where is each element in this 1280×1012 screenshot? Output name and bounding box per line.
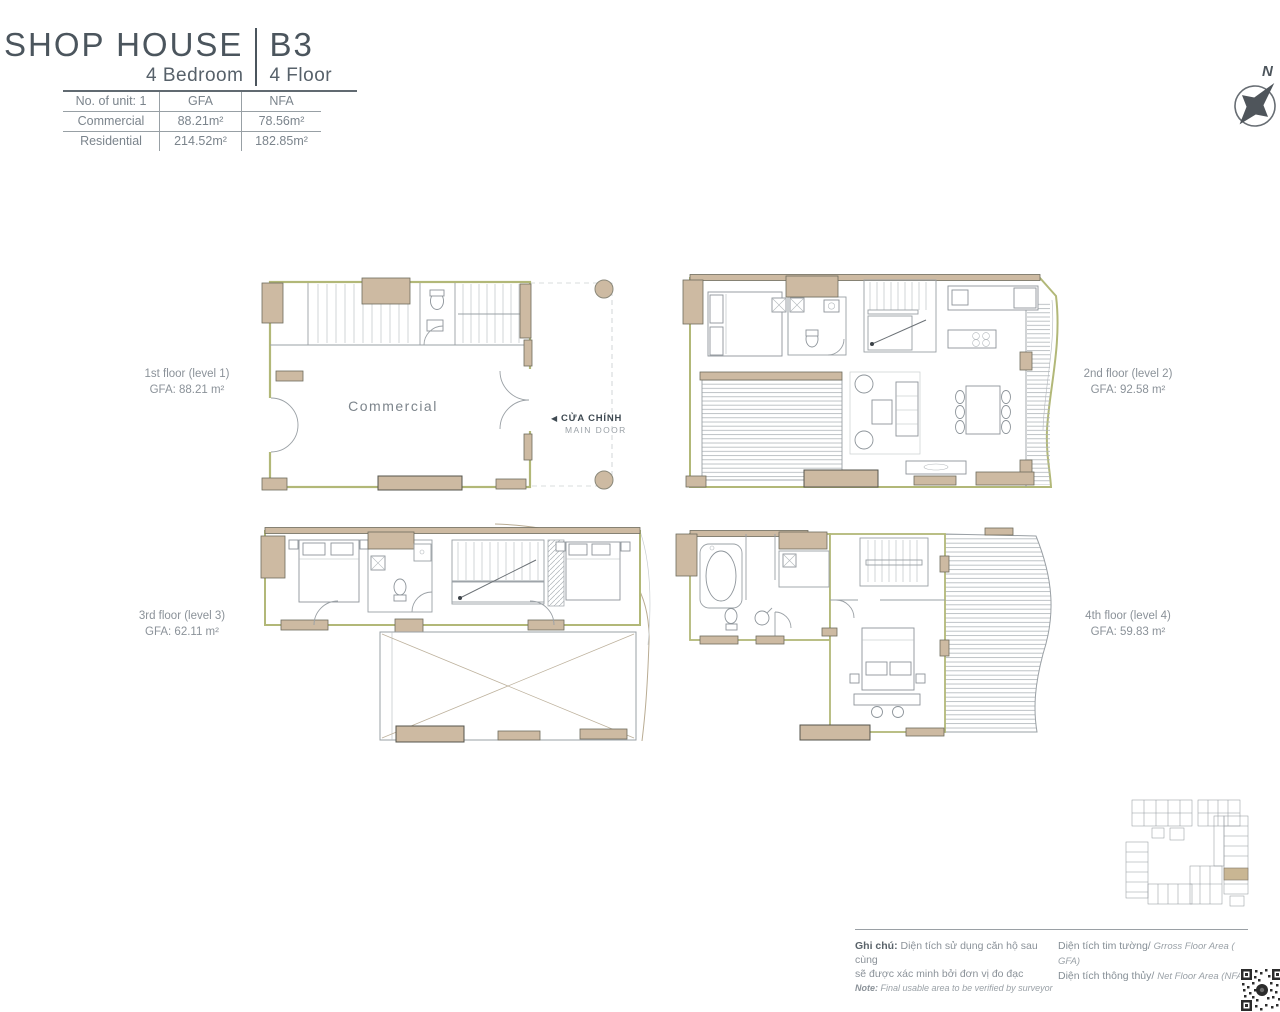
note-line-2: sẽ được xác minh bởi đơn vị đo đạc	[855, 967, 1060, 981]
compass-icon: N	[1222, 58, 1280, 138]
main-door-label-en: MAIN DOOR	[565, 425, 627, 435]
spec-table: No. of unit: 1 GFA NFA Commercial 88.21m…	[63, 92, 321, 151]
note-label-en: Note:	[855, 983, 878, 993]
stool-icon	[893, 707, 904, 718]
header: SHOP HOUSE 4 Bedroom B3 4 Floor	[4, 26, 332, 88]
spec-gfa-value: 88.21m²	[159, 112, 241, 131]
toilet-icon	[394, 579, 406, 595]
spec-col-nfa: NFA	[241, 92, 321, 111]
terrace-hatch	[945, 534, 1051, 732]
bed-icon	[862, 628, 914, 690]
console-icon	[906, 461, 966, 474]
notes-legend: Diện tích tim tường/ Grross Floor Area (…	[1058, 939, 1258, 984]
unit-code: B3	[269, 26, 313, 64]
floor-plan-level-3	[253, 516, 660, 764]
compass-north-label: N	[1262, 63, 1274, 80]
spec-label: Residential	[63, 132, 159, 151]
legend-gfa: Diện tích tim tường/ Grross Floor Area (…	[1058, 939, 1258, 969]
column-icon	[595, 471, 613, 489]
note-label-vi: Ghi chú:	[855, 940, 898, 952]
notes-divider	[855, 929, 1248, 930]
floor-name: 3rd floor (level 3)	[87, 608, 277, 624]
spec-row-commercial: Commercial 88.21m² 78.56m²	[63, 112, 321, 132]
bedroom-count: 4 Bedroom	[146, 64, 243, 88]
page-title: SHOP HOUSE	[4, 26, 243, 64]
main-door-arrow-icon: ◀	[551, 414, 558, 423]
floor-count: 4 Floor	[269, 64, 332, 88]
title-right: B3 4 Floor	[269, 26, 332, 88]
qr-code	[1240, 968, 1280, 1012]
bench-icon	[854, 694, 920, 705]
balcony-hatch	[1027, 302, 1050, 485]
stool-icon	[872, 707, 883, 718]
title-left: SHOP HOUSE 4 Bedroom	[4, 26, 243, 88]
dining-table-icon	[966, 386, 1000, 434]
bathtub-icon	[706, 551, 736, 601]
armchair-icon	[855, 375, 873, 393]
floor-label-1: 1st floor (level 1) GFA: 88.21 m²	[92, 366, 282, 398]
title-divider	[255, 28, 257, 86]
sink-icon	[755, 611, 769, 625]
toilet-icon	[725, 609, 737, 624]
spec-col-units: No. of unit: 1	[63, 92, 159, 111]
spec-row-residential: Residential 214.52m² 182.85m²	[63, 132, 321, 151]
spec-label: Commercial	[63, 112, 159, 131]
spec-col-gfa: GFA	[159, 92, 241, 111]
highlighted-unit	[1224, 868, 1248, 880]
floor-gfa: GFA: 62.11 m²	[87, 624, 277, 640]
floor-name: 1st floor (level 1)	[92, 366, 282, 382]
floor-label-3: 3rd floor (level 3) GFA: 62.11 m²	[87, 608, 277, 640]
armchair-icon	[855, 431, 873, 449]
column-icon	[595, 280, 613, 298]
floor-plan-level-4	[666, 516, 1070, 770]
void-hatch	[702, 380, 842, 480]
note-line-en: Note: Final usable area to be verified b…	[855, 981, 1060, 995]
floor-gfa: GFA: 88.21 m²	[92, 382, 282, 398]
floor-plan-level-1: Commercial ◀ CỬA CHÍNH MAIN DOOR	[255, 268, 635, 500]
sink-icon	[427, 320, 443, 331]
note-line-1: Ghi chú: Diện tích sử dụng căn hộ sau cù…	[855, 939, 1060, 967]
sink-icon	[952, 290, 968, 305]
notes-vi: Ghi chú: Diện tích sử dụng căn hộ sau cù…	[855, 939, 1060, 995]
sink-icon	[824, 300, 839, 312]
sofa-icon	[896, 382, 918, 436]
site-key-plan	[1118, 788, 1268, 923]
coffee-table-icon	[872, 400, 892, 424]
main-door-label-vi: CỬA CHÍNH	[561, 412, 622, 424]
legend-nfa: Diện tích thông thủy/ Net Floor Area (NF…	[1058, 969, 1258, 984]
spec-nfa-value: 78.56m²	[241, 112, 321, 131]
floor-plan-level-2	[678, 264, 1072, 500]
spec-table-header-row: No. of unit: 1 GFA NFA	[63, 92, 321, 112]
spec-gfa-value: 214.52m²	[159, 132, 241, 151]
spec-nfa-value: 182.85m²	[241, 132, 321, 151]
room-label-commercial: Commercial	[348, 398, 438, 414]
